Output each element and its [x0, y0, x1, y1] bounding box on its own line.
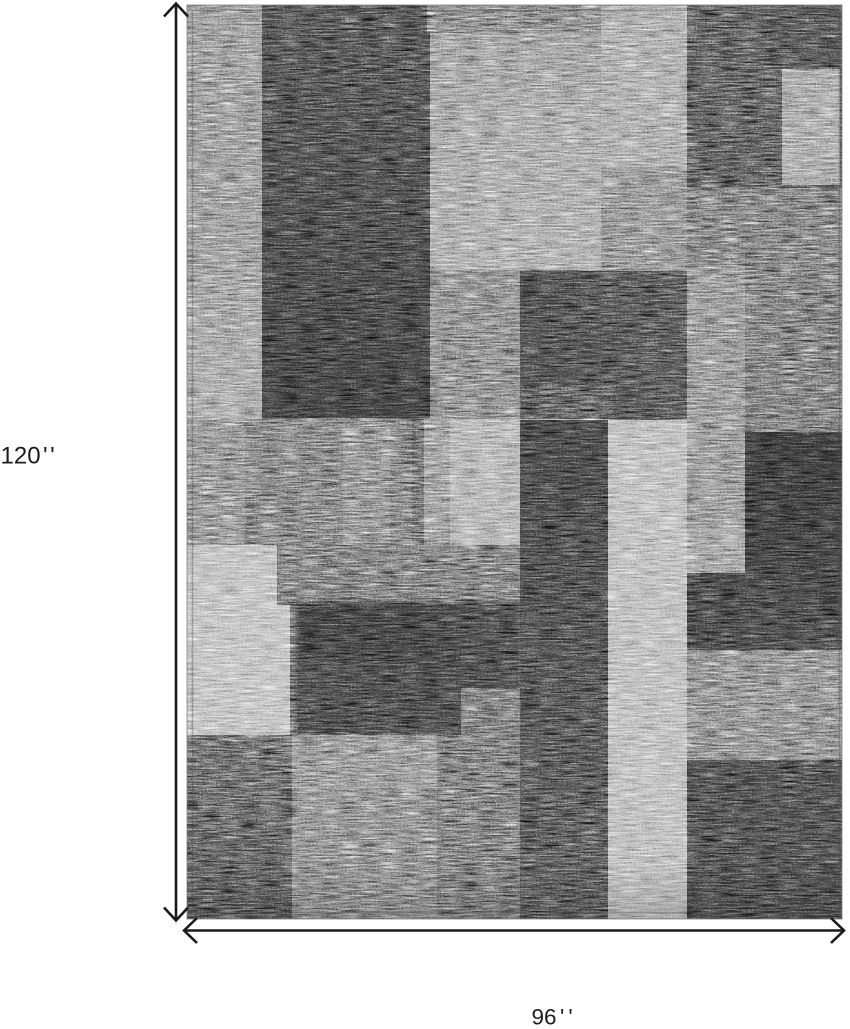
svg-text:120'': 120'' — [1, 443, 58, 470]
svg-text:96'': 96'' — [532, 1005, 577, 1029]
